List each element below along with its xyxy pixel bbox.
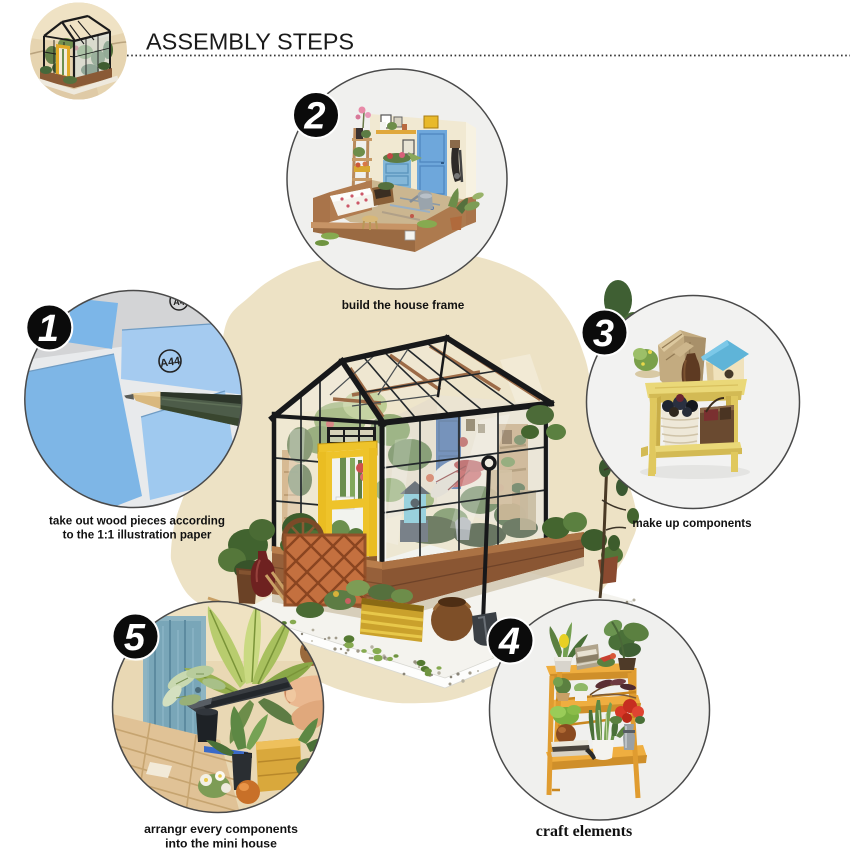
svg-text:1: 1 <box>38 308 59 350</box>
svg-text:build the house frame: build the house frame <box>342 298 465 312</box>
svg-text:5: 5 <box>124 617 146 659</box>
svg-text:to the 1:1 illustration paper: to the 1:1 illustration paper <box>63 529 212 542</box>
svg-text:take out wood pieces according: take out wood pieces according <box>49 515 225 528</box>
svg-text:make up components: make up components <box>632 517 751 530</box>
svg-text:ASSEMBLY STEPS: ASSEMBLY STEPS <box>146 29 354 55</box>
svg-text:craft elements: craft elements <box>536 823 632 840</box>
svg-text:4: 4 <box>498 621 520 663</box>
svg-text:into the mini house: into the mini house <box>165 837 277 851</box>
svg-text:2: 2 <box>303 96 325 138</box>
svg-text:3: 3 <box>593 313 614 355</box>
svg-text:arrangr every components: arrangr every components <box>144 822 298 836</box>
